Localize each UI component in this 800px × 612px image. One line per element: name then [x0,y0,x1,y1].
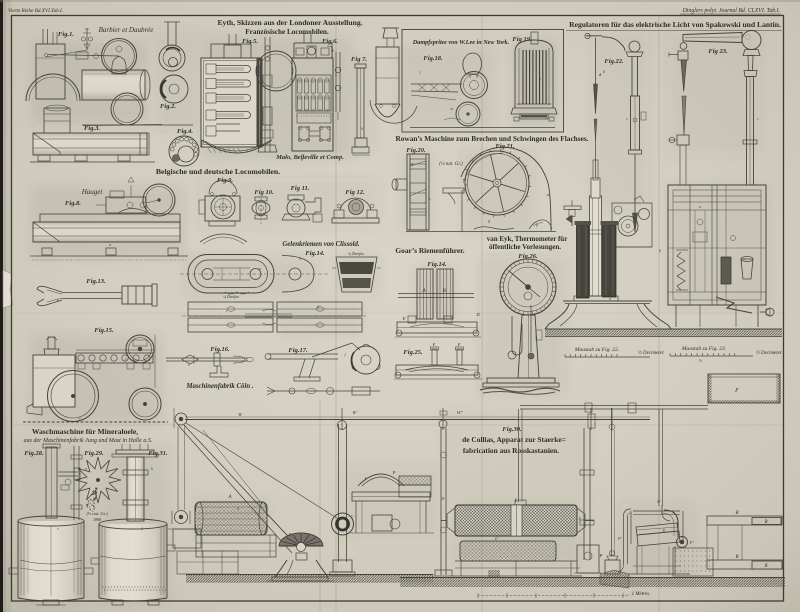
svg-text:½ Decimeter.: ½ Decimeter. [756,351,783,356]
svg-text:F’: F’ [689,540,695,545]
svg-text:R: R [734,555,738,560]
svg-text:öffentliche Vorlesungen.: öffentliche Vorlesungen. [489,243,561,251]
svg-text:Fig.1.: Fig.1. [58,31,74,38]
svg-text:Fig.14.: Fig.14. [305,250,325,257]
svg-text:Fig.17.: Fig.17. [288,347,308,354]
svg-text:P: P [599,553,603,558]
svg-text:Barbier et Daubrée: Barbier et Daubrée [99,26,154,34]
svg-text:Dampfspritze von W.Lee in New: Dampfspritze von W.Lee in New York. [412,39,510,46]
svg-text:Fig.25.: Fig.25. [403,349,423,356]
svg-text:1 Mètres.: 1 Mètres. [632,592,651,597]
svg-text:c: c [125,356,127,361]
svg-text:L’: L’ [494,536,499,541]
svg-text:1808: 1808 [93,517,101,522]
svg-text:w: w [609,296,612,301]
svg-text:Maastab zu Fig. 22.: Maastab zu Fig. 22. [574,347,619,353]
svg-text:Waschmaschine für Mineraloele,: Waschmaschine für Mineraloele, [32,427,138,436]
svg-text:n: n [539,76,541,81]
svg-text:Fig.21.: Fig.21. [495,143,515,150]
svg-text:c: c [757,116,759,121]
svg-text:D: D [441,496,445,501]
svg-text:Rowan’s Maschine zum Brechen u: Rowan’s Maschine zum Brechen und Schwing… [396,134,589,143]
svg-text:C: C [351,514,354,519]
svg-text:Fig.3.: Fig.3. [84,125,100,132]
svg-text:y: y [698,326,701,331]
svg-text:¼ Dreifus: ¼ Dreifus [348,251,364,256]
svg-text:Maschinenfabrik Cöln .: Maschinenfabrik Cöln . [185,383,253,390]
svg-text:m: m [547,192,550,197]
svg-text:Französische Locomobilen.: Französische Locomobilen. [245,28,329,36]
svg-text:a: a [109,242,111,247]
svg-text:van Eyk, Thermometer für: van Eyk, Thermometer für [487,235,568,243]
svg-text:b: b [659,248,661,253]
svg-text:a: a [259,266,261,271]
svg-text:c: c [226,308,228,313]
svg-text:Maastab zu Fig. 23.: Maastab zu Fig. 23. [681,346,726,352]
svg-text:F: F [432,342,436,347]
svg-text:E: E [578,516,582,521]
svg-text:x: x [742,256,745,261]
svg-text:b: b [299,256,301,261]
svg-text:aus der Maschinenfabrik Jung u: aus der Maschinenfabrik Jung und Mast in… [24,437,153,444]
svg-text:Dinglers polyt. Journal Bd. CL: Dinglers polyt. Journal Bd. CLXVI. Tab.I… [682,8,780,14]
svg-text:Belgische und deutsche Locomob: Belgische und deutsche Locomobilen. [156,167,280,176]
svg-text:Goar’s Riemenführer.: Goar’s Riemenführer. [395,246,464,255]
svg-text:(⅓ nat. Gr.): (⅓ nat. Gr.) [86,511,108,516]
svg-text:R: R [763,520,767,525]
svg-text:W’’: W’’ [457,410,464,415]
svg-text:S’: S’ [657,499,661,504]
svg-text:(¼ nat. Gr.): (¼ nat. Gr.) [439,162,463,167]
svg-text:F: F [734,388,739,394]
svg-text:e: e [79,416,81,421]
svg-text:K: K [662,528,666,533]
svg-text:¼ Dreifus: ¼ Dreifus [223,294,239,299]
svg-text:e: e [626,116,628,121]
svg-text:c: c [429,196,431,201]
svg-text:e: e [188,362,190,367]
svg-text:b: b [151,466,153,471]
svg-text:Fig.15.: Fig.15. [94,327,114,334]
svg-text:b: b [57,298,59,303]
svg-text:n: n [465,182,467,187]
svg-text:k: k [335,72,337,77]
svg-text:Fig.13.: Fig.13. [86,278,106,285]
svg-text:a: a [699,204,701,209]
svg-text:c: c [57,526,59,531]
svg-text:Vierte Reihe Bd.XVI.Tab.I.: Vierte Reihe Bd.XVI.Tab.I. [8,8,63,14]
svg-text:A: A [421,288,426,294]
svg-text:Eyth, Skizzen aus der Londoner: Eyth, Skizzen aus der Londoner Ausstellu… [217,18,362,27]
svg-text:P: P [392,470,396,475]
svg-text:m: m [451,106,454,111]
svg-text:Fig.16.: Fig.16. [210,346,230,353]
svg-text:R: R [763,564,767,569]
svg-text:g: g [488,218,490,223]
svg-text:F: F [457,342,461,347]
svg-text:E: E [402,316,406,321]
svg-text:Fig.14.: Fig.14. [427,261,447,268]
svg-text:g: g [301,156,303,161]
svg-text:L: L [514,499,518,504]
svg-text:½ Decimeter.: ½ Decimeter. [638,351,665,356]
svg-text:R: R [734,511,738,516]
svg-text:Regulatoren für das elektrisch: Regulatoren für das elektrische Licht vo… [569,20,781,29]
svg-text:p: p [535,222,538,227]
svg-text:A: A [236,506,240,511]
svg-text:a: a [85,466,87,471]
svg-text:Fig.20.: Fig.20. [406,147,426,154]
svg-text:h: h [361,126,363,131]
svg-text:W’: W’ [352,410,358,415]
svg-text:Gelenkriemen von Clissold.: Gelenkriemen von Clissold. [282,241,360,248]
svg-text:P’: P’ [617,536,622,541]
